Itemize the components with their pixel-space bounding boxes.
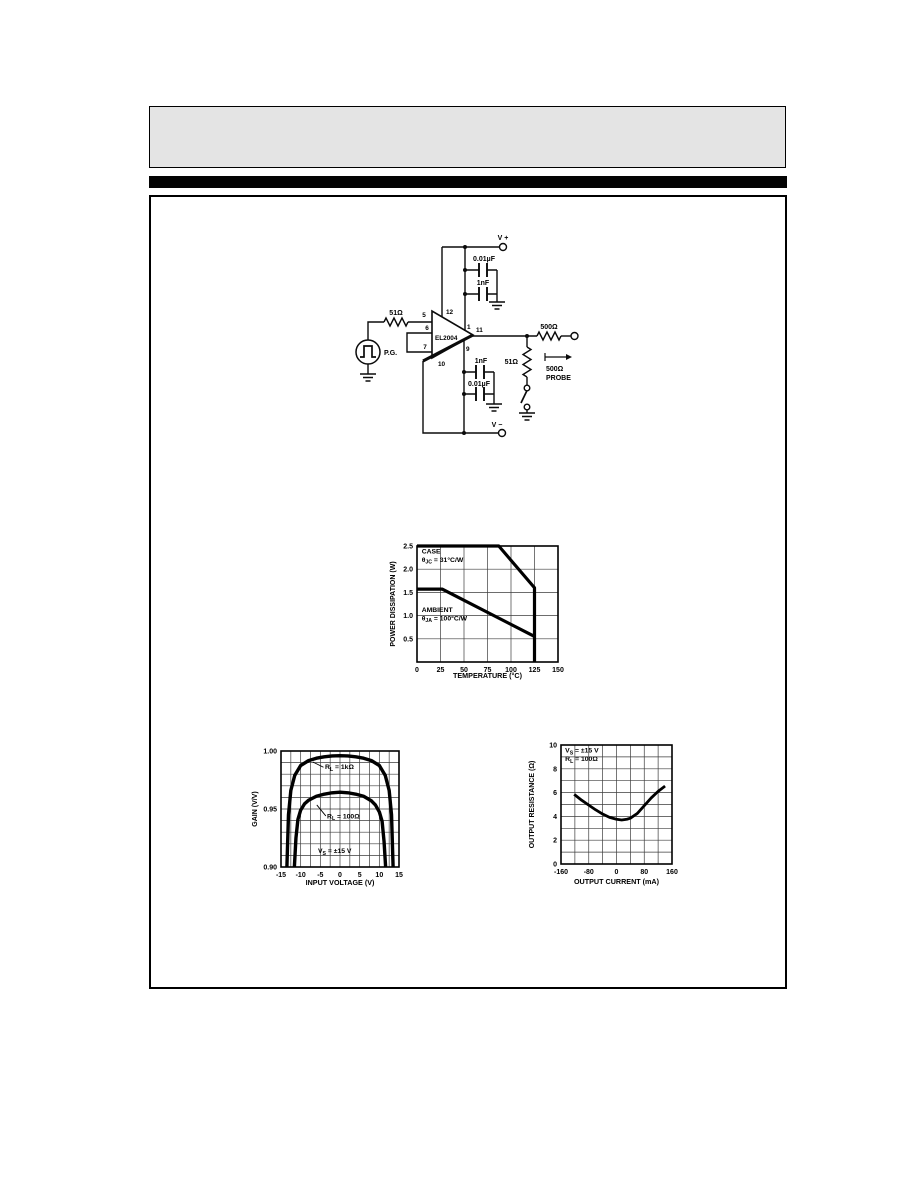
chart-annotation: RL = 100Ω bbox=[565, 756, 598, 765]
pin-6: 6 bbox=[425, 325, 429, 332]
chart-annotation: AMBIENT bbox=[422, 607, 454, 614]
label-vminus: V − bbox=[492, 422, 503, 429]
chart-annotation: VS = ±15 V bbox=[565, 748, 599, 757]
pin-9: 9 bbox=[466, 346, 470, 353]
x-tick-label: 0 bbox=[615, 869, 619, 876]
label-probe: PROBE bbox=[546, 375, 571, 382]
y-tick-label: 0.5 bbox=[403, 636, 413, 643]
ground-icon bbox=[486, 404, 502, 411]
x-tick-label: 0 bbox=[415, 667, 419, 674]
pin-5: 5 bbox=[422, 312, 426, 319]
output-resistance-chart: VS = ±15 VRL = 100Ω-160-800801600246810O… bbox=[510, 730, 702, 890]
capacitor-top-1nf bbox=[479, 287, 487, 301]
y-tick-label: 2 bbox=[553, 838, 557, 845]
ground-icon bbox=[519, 413, 535, 420]
x-tick-label: -15 bbox=[276, 872, 286, 879]
label-probe-r: 500Ω bbox=[546, 366, 564, 373]
circuit-wires bbox=[368, 247, 571, 433]
y-tick-label: 1.5 bbox=[403, 590, 413, 597]
switch bbox=[521, 385, 530, 410]
x-tick-label: 10 bbox=[375, 872, 383, 879]
test-circuit-schematic: V + V − 0.01µF 1nF 1nF 0.01µF 51Ω 500Ω 5… bbox=[330, 226, 600, 454]
y-axis-label: OUTPUT RESISTANCE (Ω) bbox=[529, 761, 536, 849]
ground-icon bbox=[489, 302, 505, 309]
gain-vs-input-voltage-chart: RL = 1kΩRL = 100ΩVS = ±15 V-15-10-505101… bbox=[230, 735, 416, 893]
series-line bbox=[574, 786, 665, 820]
datasheet-page: V + V − 0.01µF 1nF 1nF 0.01µF 51Ω 500Ω 5… bbox=[0, 0, 918, 1188]
label-r-shunt: 51Ω bbox=[505, 359, 519, 366]
capacitor-bottom-001uf bbox=[476, 387, 484, 401]
power-dissipation-chart: CASEθJC = 31°C/WAMBIENTθJA = 100°C/W0255… bbox=[365, 532, 577, 690]
probe-arrow-icon bbox=[545, 353, 572, 361]
x-axis-label: TEMPERATURE (°C) bbox=[453, 671, 523, 680]
y-tick-label: 1.00 bbox=[263, 749, 277, 756]
chart-annotation: CASE bbox=[422, 548, 441, 555]
label-r-input: 51Ω bbox=[389, 310, 403, 317]
annotation-leader bbox=[317, 805, 326, 816]
y-tick-label: 1.0 bbox=[403, 613, 413, 620]
y-axis-label: POWER DISSIPATION (W) bbox=[390, 561, 397, 646]
resistor-output-500ohm bbox=[537, 332, 561, 340]
pulse-generator bbox=[356, 340, 380, 364]
label-cap-top-inner: 1nF bbox=[477, 280, 490, 287]
label-vplus: V + bbox=[498, 235, 509, 242]
label-pg: P.G. bbox=[384, 350, 397, 357]
x-tick-label: -10 bbox=[296, 872, 306, 879]
y-axis-label: GAIN (V/V) bbox=[252, 791, 259, 826]
junction-dots bbox=[462, 245, 529, 435]
title-bar bbox=[149, 176, 787, 188]
label-cap-bottom-inner: 1nF bbox=[475, 358, 488, 365]
pin-1: 1 bbox=[467, 324, 471, 331]
y-tick-label: 8 bbox=[553, 766, 557, 773]
x-tick-label: 80 bbox=[640, 869, 648, 876]
label-ic: EL2004 bbox=[435, 335, 458, 342]
label-cap-top-outer: 0.01µF bbox=[473, 256, 496, 263]
resistor-shunt-51ohm bbox=[523, 347, 531, 377]
y-tick-label: 0 bbox=[553, 862, 557, 869]
vplus-terminal bbox=[500, 244, 507, 251]
x-tick-label: 160 bbox=[666, 869, 678, 876]
x-tick-label: 25 bbox=[437, 667, 445, 674]
capacitor-bottom-1nf bbox=[476, 365, 484, 379]
vminus-terminal bbox=[499, 430, 506, 437]
ground-icon bbox=[360, 374, 376, 381]
x-tick-label: 150 bbox=[552, 667, 564, 674]
x-axis-label: OUTPUT CURRENT (mA) bbox=[574, 877, 660, 886]
y-tick-label: 0.95 bbox=[263, 807, 277, 814]
pin-11: 11 bbox=[476, 327, 483, 334]
header-banner bbox=[149, 106, 786, 168]
y-tick-label: 10 bbox=[549, 743, 557, 750]
y-tick-label: 2.5 bbox=[403, 544, 413, 551]
y-tick-label: 4 bbox=[553, 814, 557, 821]
capacitor-top-001uf bbox=[479, 263, 487, 277]
pin-12: 12 bbox=[446, 309, 454, 316]
x-tick-label: 125 bbox=[529, 667, 541, 674]
y-tick-label: 2.0 bbox=[403, 567, 413, 574]
x-tick-label: 15 bbox=[395, 872, 403, 879]
label-cap-bottom-outer: 0.01µF bbox=[468, 381, 491, 388]
output-terminal bbox=[571, 333, 578, 340]
y-tick-label: 6 bbox=[553, 790, 557, 797]
y-tick-label: 0.90 bbox=[263, 865, 277, 872]
resistor-input-51ohm bbox=[384, 318, 408, 326]
chart-annotation: θJC = 31°C/W bbox=[422, 556, 464, 566]
pin-10: 10 bbox=[438, 361, 446, 368]
label-r-series-out: 500Ω bbox=[540, 324, 558, 331]
x-axis-label: INPUT VOLTAGE (V) bbox=[306, 878, 375, 887]
x-tick-label: -80 bbox=[584, 869, 594, 876]
x-tick-label: -160 bbox=[554, 869, 568, 876]
pin-7: 7 bbox=[423, 344, 427, 351]
